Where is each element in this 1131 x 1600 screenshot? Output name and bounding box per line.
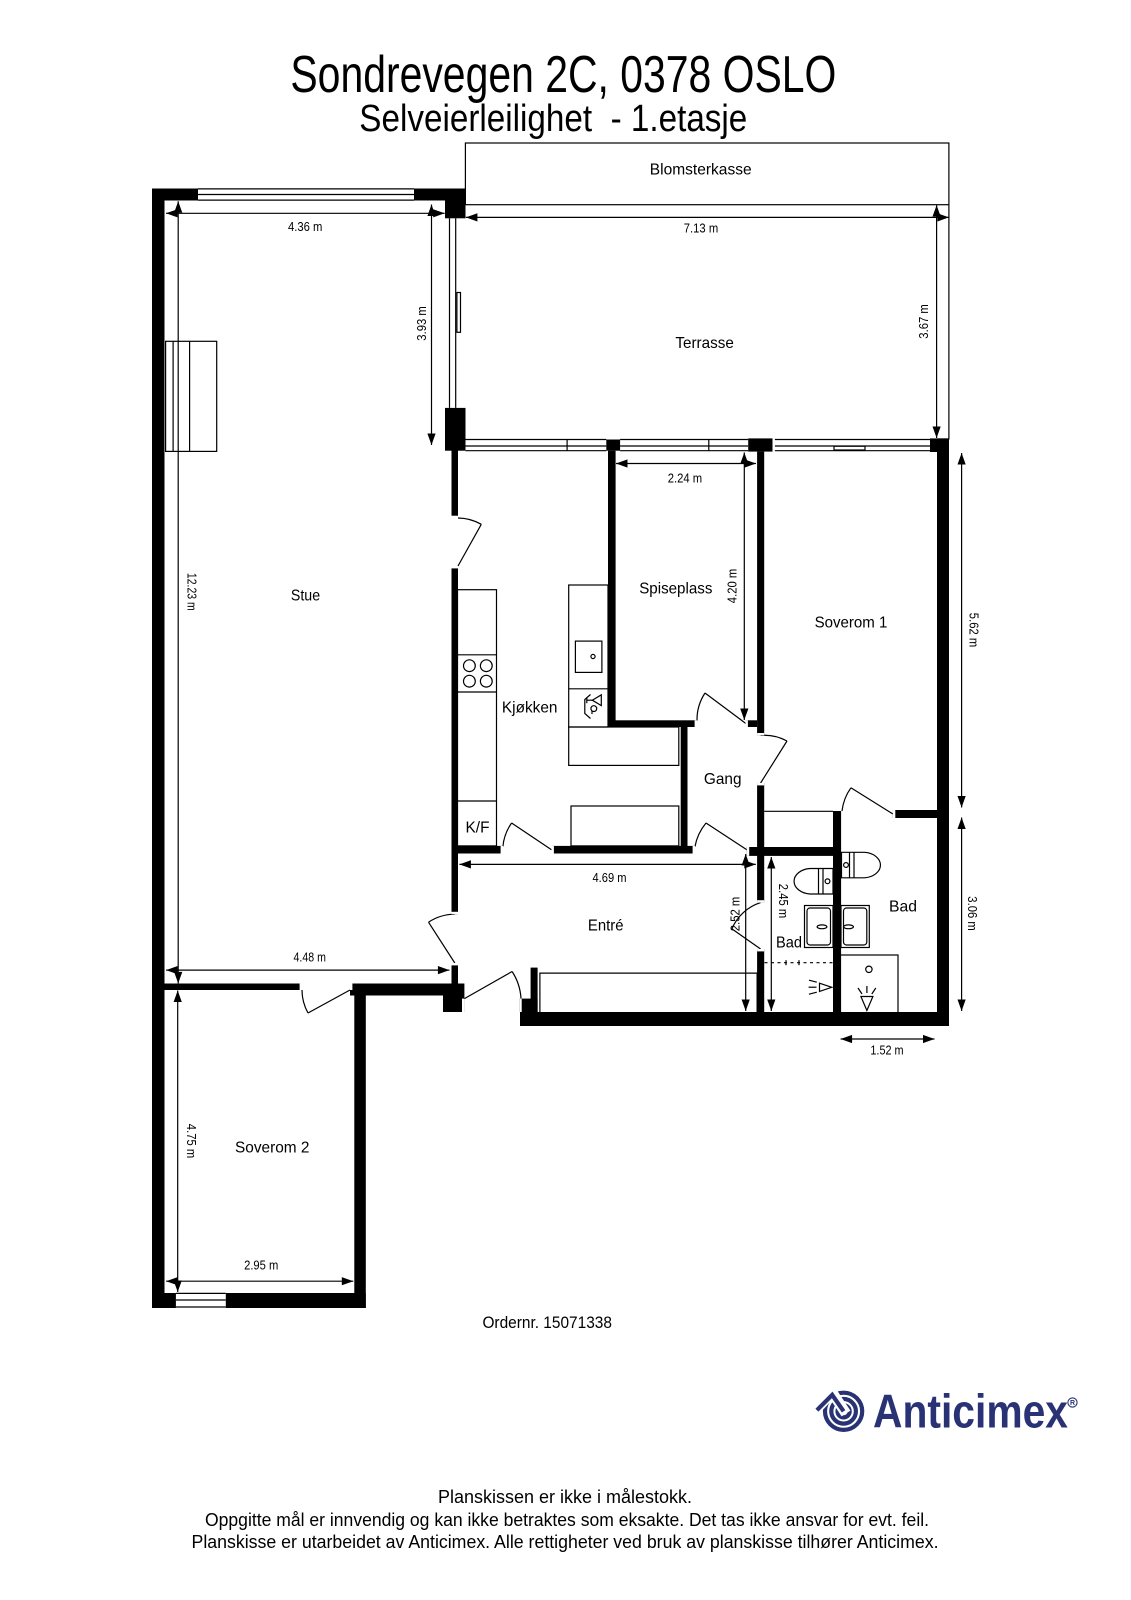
svg-text:12.23 m: 12.23 m [185, 573, 199, 611]
svg-text:3.67 m: 3.67 m [917, 304, 931, 338]
svg-text:Ordernr. 15071338: Ordernr. 15071338 [482, 1313, 612, 1332]
svg-text:Blomsterkasse: Blomsterkasse [650, 161, 752, 178]
svg-text:Spiseplass: Spiseplass [639, 581, 712, 598]
svg-text:Planskissen er ikke i målestok: Planskissen er ikke i målestokk. [438, 1487, 692, 1507]
svg-text:Bad: Bad [776, 935, 802, 952]
svg-text:4.36 m: 4.36 m [288, 219, 322, 234]
svg-text:R: R [1070, 1400, 1075, 1407]
svg-text:Planskisse er utarbeidet av An: Planskisse er utarbeidet av Anticimex. A… [192, 1532, 939, 1552]
svg-text:3.93 m: 3.93 m [415, 306, 429, 340]
svg-text:1.52 m: 1.52 m [870, 1043, 903, 1058]
svg-text:4.75 m: 4.75 m [184, 1124, 198, 1158]
svg-text:5.62 m: 5.62 m [967, 613, 981, 647]
svg-text:Bad: Bad [889, 899, 917, 916]
svg-text:2.52 m: 2.52 m [729, 897, 743, 931]
svg-text:7.13 m: 7.13 m [684, 221, 718, 236]
svg-text:Anticimex: Anticimex [873, 1385, 1068, 1438]
svg-text:2.45 m: 2.45 m [776, 884, 790, 918]
svg-text:4.69 m: 4.69 m [593, 870, 627, 885]
svg-text:Gang: Gang [704, 771, 742, 788]
svg-text:Stue: Stue [291, 588, 320, 605]
svg-text:2.95 m: 2.95 m [244, 1258, 278, 1273]
svg-text:4.48 m: 4.48 m [294, 950, 326, 965]
svg-text:Soverom 2: Soverom 2 [235, 1140, 309, 1157]
svg-text:4.20 m: 4.20 m [725, 569, 739, 603]
svg-text:Selveierleilighet - 1.etasje: Selveierleilighet - 1.etasje [359, 98, 747, 140]
svg-text:Entré: Entré [588, 918, 624, 935]
svg-text:2.24 m: 2.24 m [668, 471, 702, 486]
svg-text:3.06 m: 3.06 m [965, 896, 979, 930]
svg-text:Oppgitte mål er innvendig og k: Oppgitte mål er innvendig og kan ikke be… [205, 1510, 929, 1530]
svg-text:Kjøkken: Kjøkken [502, 700, 558, 717]
svg-text:Terrasse: Terrasse [675, 335, 733, 352]
svg-text:K/F: K/F [466, 820, 490, 837]
svg-text:Soverom 1: Soverom 1 [815, 615, 888, 632]
svg-text:Sondrevegen 2C, 0378 OSLO: Sondrevegen 2C, 0378 OSLO [290, 46, 836, 104]
